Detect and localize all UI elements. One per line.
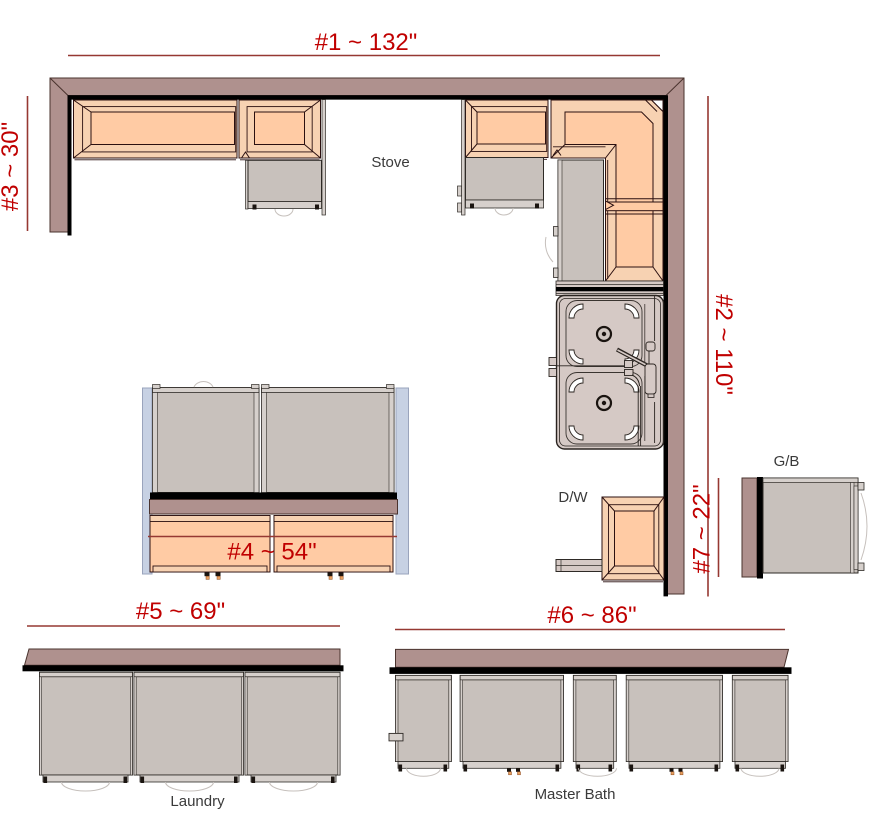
svg-text:#5 ~ 69": #5 ~ 69" [136,598,225,625]
svg-text:#3 ~ 30": #3 ~ 30" [0,122,24,211]
svg-text:#1 ~ 132": #1 ~ 132" [315,29,418,56]
svg-text:Laundry: Laundry [170,793,225,810]
svg-text:#7 ~ 22": #7 ~ 22" [689,484,716,573]
svg-text:#6 ~ 86": #6 ~ 86" [547,602,636,629]
svg-text:Stove: Stove [371,154,409,171]
svg-text:Master Bath: Master Bath [535,786,616,803]
svg-text:G/B: G/B [774,453,800,470]
svg-text:#2 ~ 110": #2 ~ 110" [710,294,737,395]
svg-text:#4 ~ 54": #4 ~ 54" [227,539,316,566]
svg-text:D/W: D/W [558,489,588,506]
